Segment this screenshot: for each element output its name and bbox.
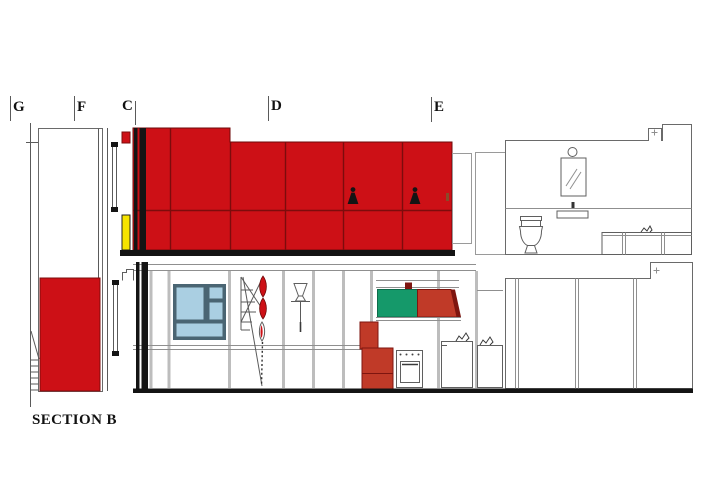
red-volume-body [133,128,452,250]
rail-cap [112,351,119,356]
sink-tap-icon [456,333,469,341]
stove-knob [406,354,408,356]
grid-label-g: G [13,99,25,115]
ladder-rail-lower [112,280,119,356]
green-cabinet [378,290,418,318]
rail-cap [112,280,119,285]
mullion-black-upper [134,128,138,250]
red-cabinet [418,290,458,318]
wall-light [568,148,577,157]
toilet-base [525,246,537,254]
shaft-wide [476,153,506,255]
loft-knob [405,283,412,290]
yellow-panel [122,215,130,250]
stairs [31,331,39,390]
section-drawing: G F C D E [0,0,707,500]
mullion-black-upper [140,128,147,250]
sculpture-tail-dashed [262,342,263,386]
toilet-lid [521,217,542,221]
window-pane-large [176,287,204,320]
armchair-seat [362,348,393,390]
upper-red-volume [120,128,455,256]
section-title: SECTION B [32,412,117,428]
lower-right-wall [506,263,693,389]
shaft-narrow [453,154,472,244]
window-pane-small-mid [209,302,223,320]
bathroom [506,125,692,255]
kitchen-loft [376,281,461,321]
door-pull-mark [446,193,449,201]
mid-rail [133,346,362,350]
basin-tap [572,202,575,208]
mirror-frame [561,158,586,196]
cabinet-tap-icon [480,337,493,345]
stove-knob [412,354,414,356]
grid-label-c: C [122,98,133,114]
red-chimney-stub [122,132,130,143]
tower-red-panel [40,278,100,391]
stove-knob [418,354,420,356]
ladder-rail-upper [111,142,118,212]
sculpture [241,276,266,386]
figure-head [351,187,356,192]
toilet-tank [522,221,541,227]
stove [397,351,423,388]
sculpture-lens [260,276,267,297]
grid-label-e: E [434,99,444,115]
service-shafts [453,153,506,255]
sculpture-lens [260,298,267,319]
mullion-black-lower [142,262,149,389]
wash-basin [557,211,588,218]
grid-label-f: F [77,99,86,115]
counter-body [442,342,473,388]
ground-line [133,389,693,394]
section-b-svg: G F C D E [0,0,707,500]
rail-cap [111,207,118,212]
mirror [561,158,586,196]
window-pane-small-top [209,287,223,299]
lower-level-grid [123,262,504,390]
party-wall [108,128,120,391]
base-cabinet [477,291,503,388]
wall-shell [506,263,693,389]
blue-window [173,284,226,340]
cabinet-body [478,346,503,388]
mullion-black-lower [136,262,140,389]
left-tower [26,123,103,407]
floor-slab [120,250,455,256]
lamp-shade [294,284,307,297]
armchair [360,322,393,390]
rail-cap [111,142,118,147]
stove-knob [400,354,402,356]
armchair-back [360,322,378,349]
floor-lamp [291,284,310,333]
window-pane-bottom [176,323,223,337]
figure-head [413,187,418,192]
grid-axis: G F C D E [11,96,445,125]
lamp-neck [296,296,306,301]
grid-label-d: D [271,98,282,114]
stair-stringer [31,331,39,359]
wall-stub [123,270,134,281]
sink-counter [442,333,473,388]
